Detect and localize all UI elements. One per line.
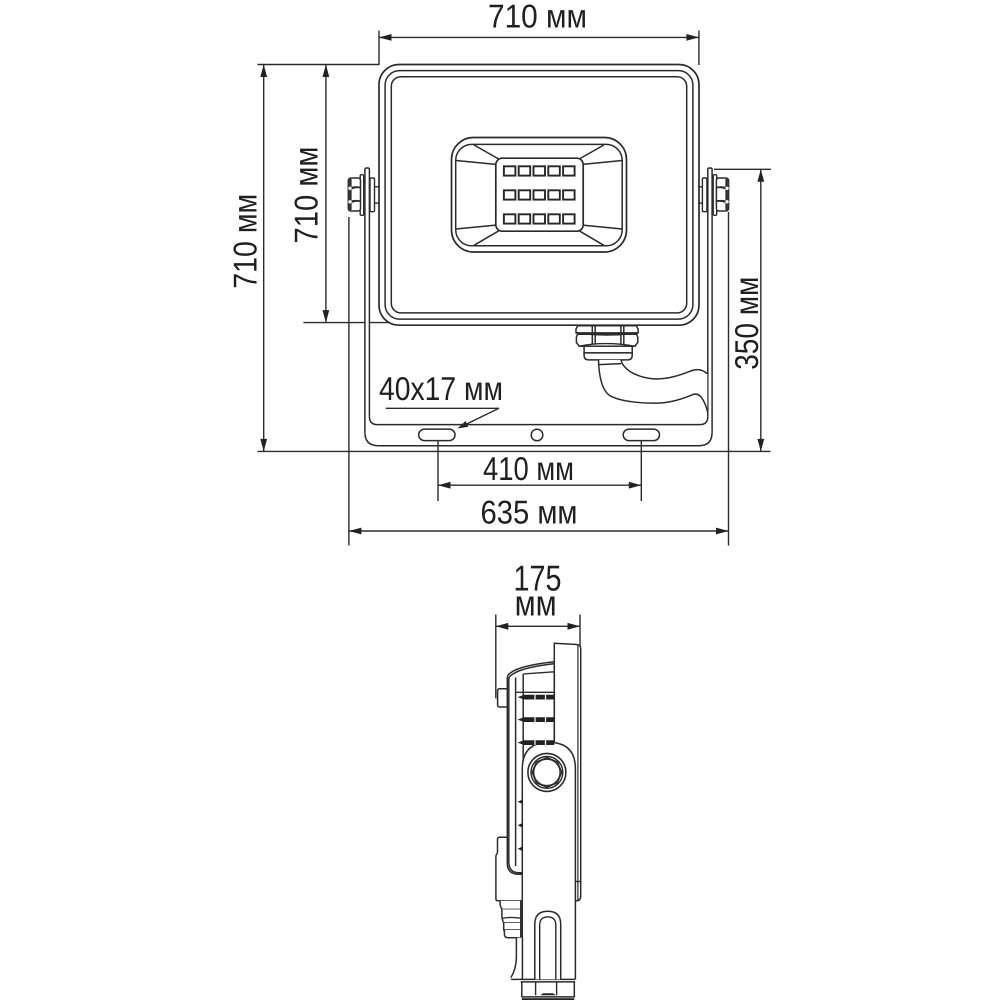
svg-text:635 мм: 635 мм <box>481 494 578 531</box>
svg-text:350 мм: 350 мм <box>728 277 765 370</box>
svg-text:40x17 мм: 40x17 мм <box>379 370 503 407</box>
svg-text:710 мм: 710 мм <box>227 194 264 289</box>
svg-text:710 мм: 710 мм <box>488 0 587 35</box>
svg-text:710 мм: 710 мм <box>288 147 325 244</box>
svg-text:410 мм: 410 мм <box>483 450 574 487</box>
svg-text:мм: мм <box>515 582 557 623</box>
